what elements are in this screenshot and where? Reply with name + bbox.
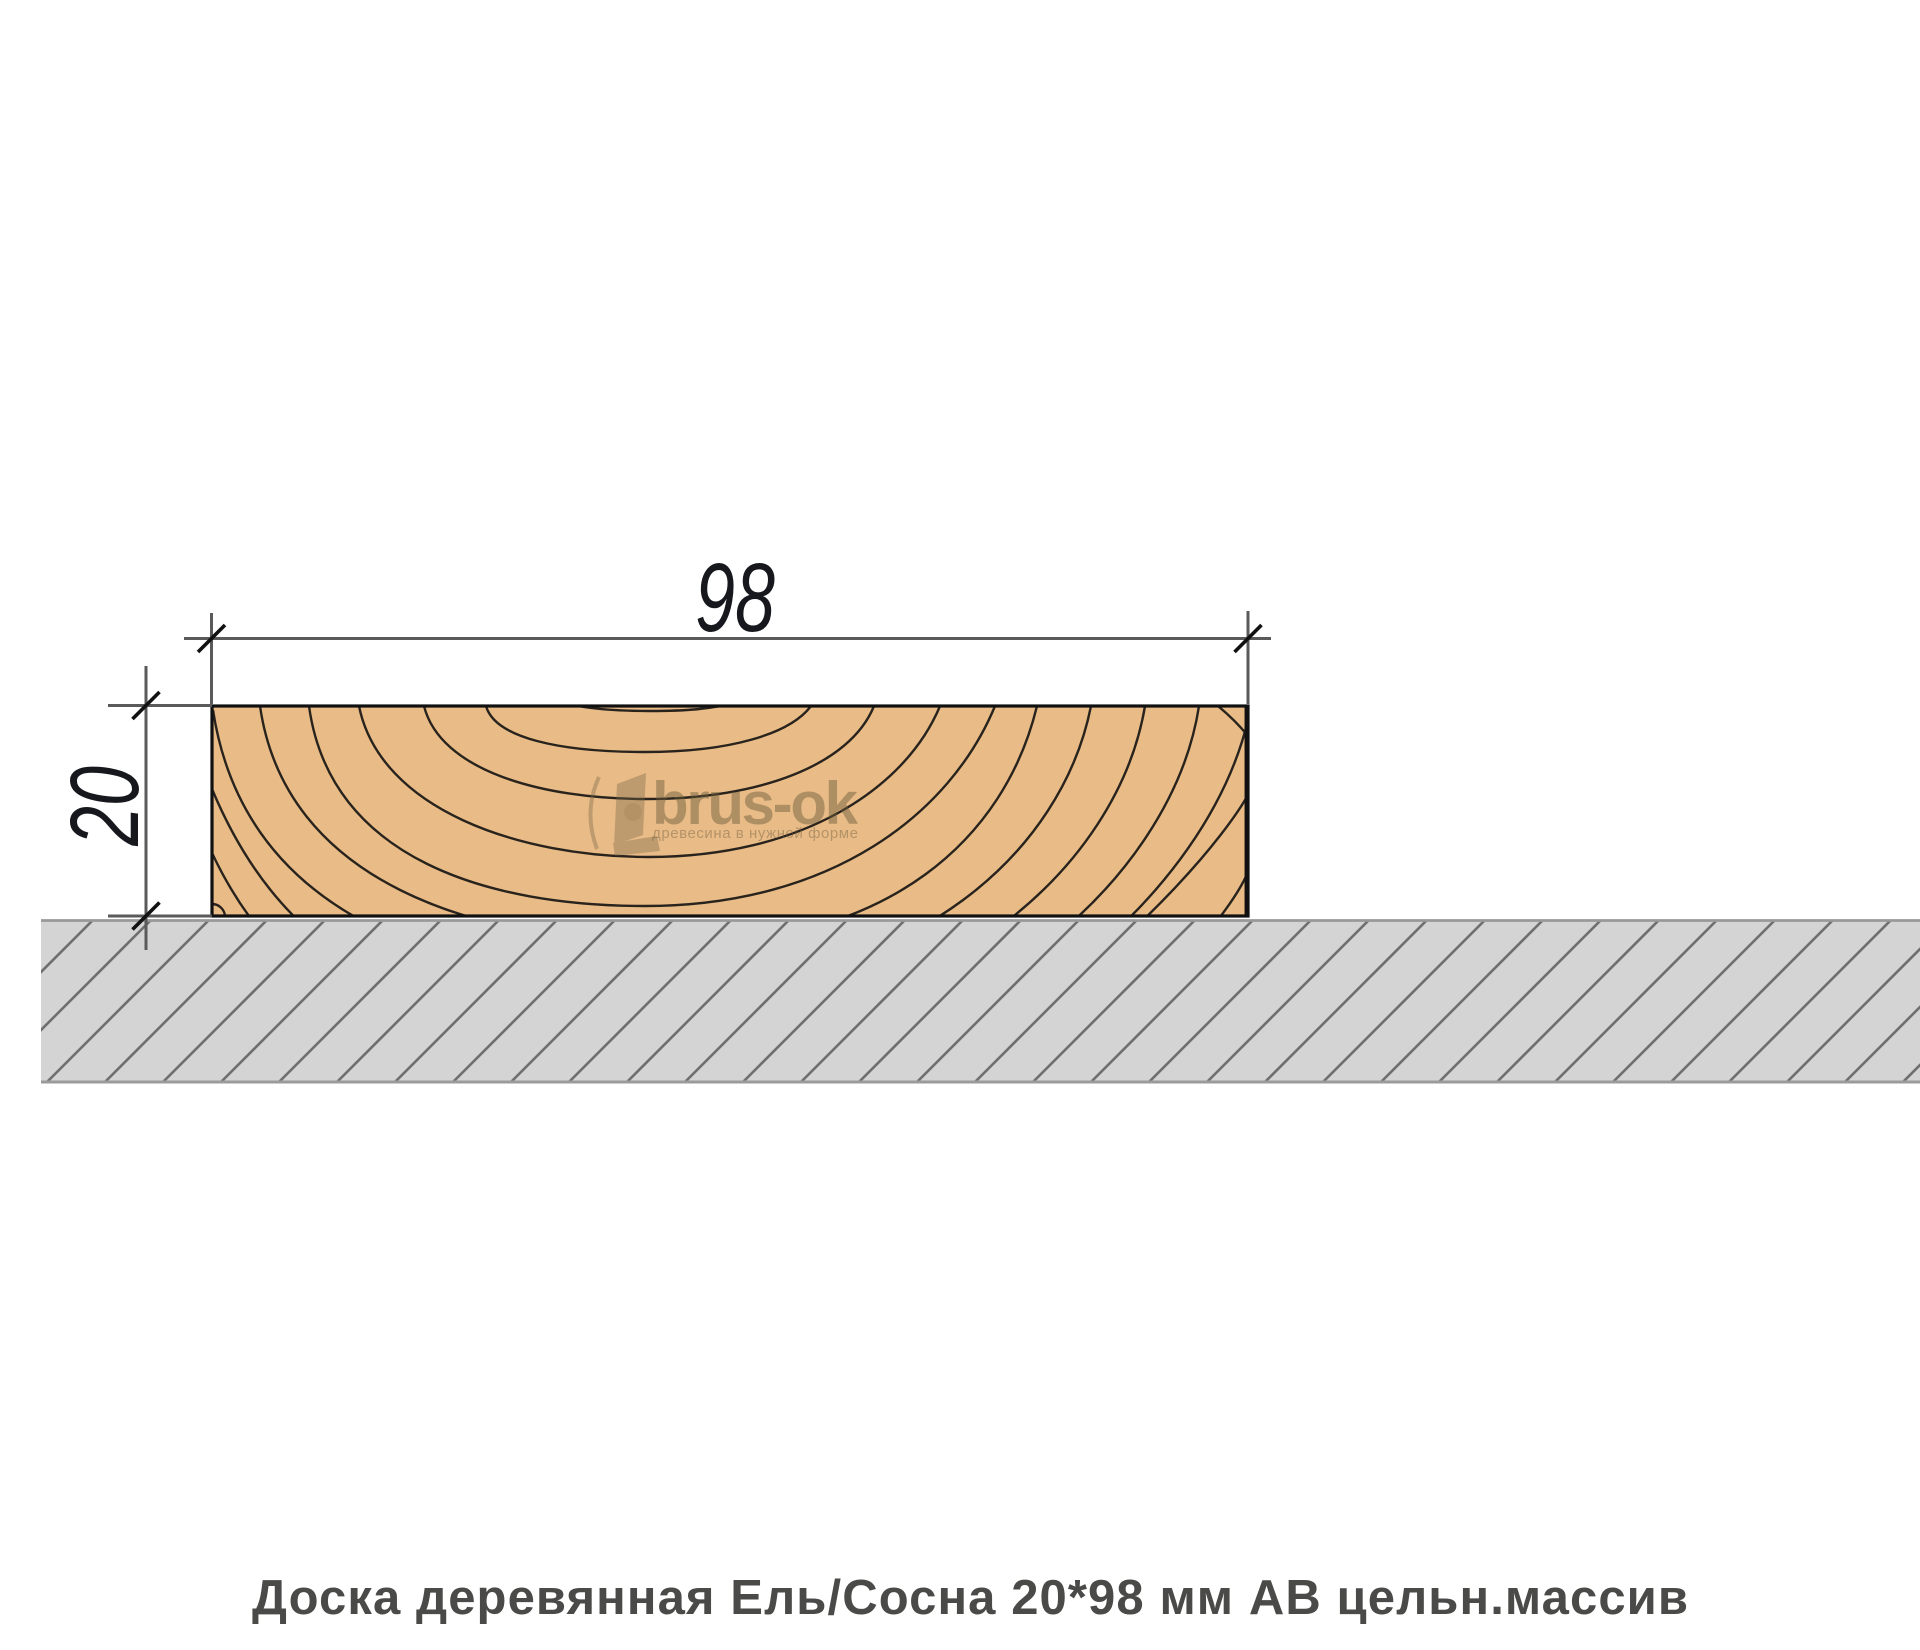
- svg-text:древесина в нужной форме: древесина в нужной форме: [652, 825, 858, 842]
- svg-text:20: 20: [52, 766, 160, 847]
- svg-text:98: 98: [695, 545, 775, 653]
- svg-text:Доска деревянная Ель/Сосна 20*: Доска деревянная Ель/Сосна 20*98 мм АВ ц…: [252, 1571, 1688, 1625]
